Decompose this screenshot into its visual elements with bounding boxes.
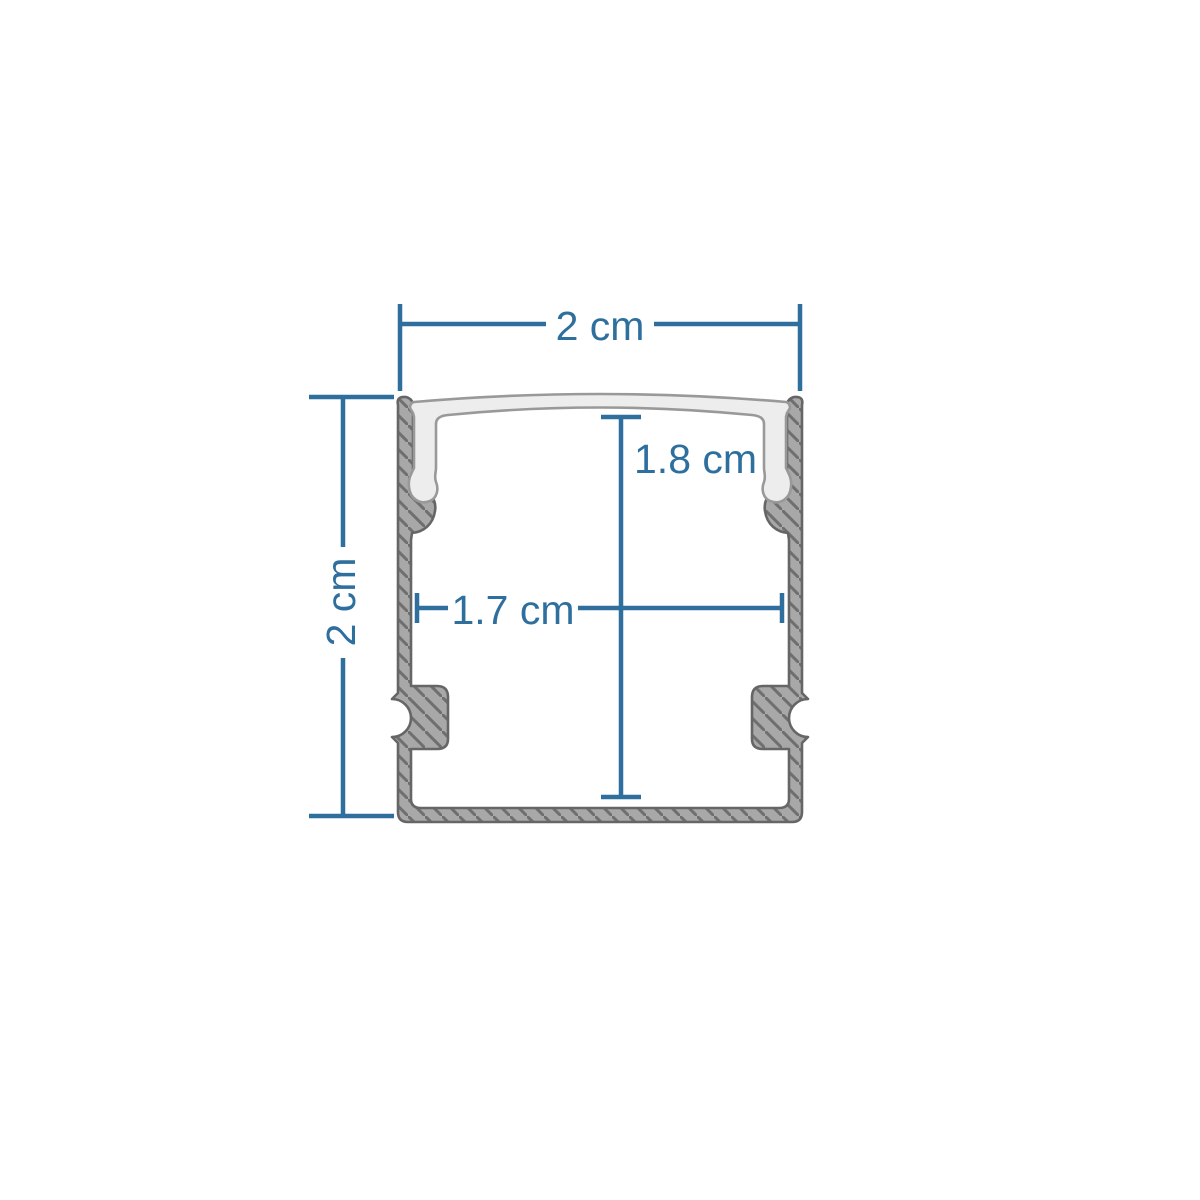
dimension-overall-height: 2 cm <box>309 397 394 816</box>
dimension-label-inner-height: 1.8 cm <box>634 436 757 482</box>
profile-technical-drawing: 2 cm 2 cm 1.8 cm 1.7 cm <box>0 0 1200 1200</box>
dimension-top-width: 2 cm <box>400 303 800 391</box>
dimension-label-overall-height: 2 cm <box>318 558 364 647</box>
dimension-label-top-width: 2 cm <box>556 303 645 349</box>
drawing-canvas: 2 cm 2 cm 1.8 cm 1.7 cm <box>0 0 1200 1200</box>
dimension-label-inner-width: 1.7 cm <box>451 587 574 633</box>
dimension-inner-width: 1.7 cm <box>417 587 782 633</box>
